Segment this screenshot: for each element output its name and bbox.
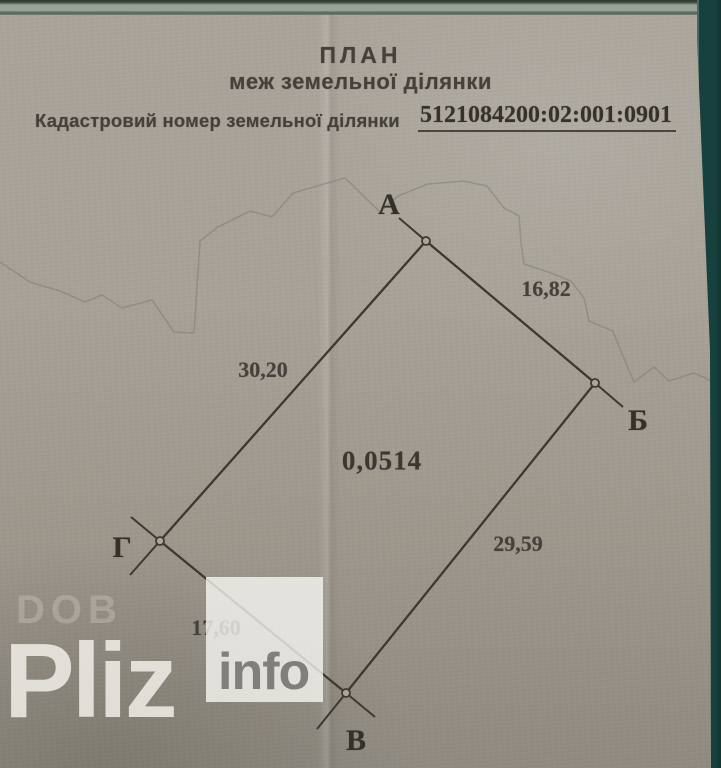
vertex-label-g: Г: [112, 531, 131, 565]
extension-at-v-left: [317, 693, 346, 729]
side-length-gv: 17,60: [191, 615, 241, 641]
extension-at-g-lower: [130, 541, 160, 575]
plot-drawing: [0, 0, 721, 768]
vertex-marker-v: [342, 689, 350, 697]
vertex-marker-b: [591, 379, 599, 387]
adjacent-boundary-contour: [0, 178, 714, 382]
extension-at-b: [595, 383, 623, 407]
parcel-area-value: 0,0514: [342, 446, 422, 477]
vertex-label-v: В: [346, 724, 366, 758]
extension-at-v-right: [346, 693, 375, 717]
extension-at-g-upper: [131, 517, 160, 541]
vertex-marker-a: [422, 237, 430, 245]
vertex-label-b: Б: [628, 404, 648, 438]
vertex-label-a: А: [378, 188, 400, 222]
side-length-ab: 16,82: [521, 276, 571, 302]
side-length-bv: 29,59: [493, 531, 543, 557]
side-length-ag: 30,20: [238, 357, 288, 383]
scanned-cadastral-plan: ПЛАН меж земельної ділянки Кадастровий н…: [0, 0, 721, 768]
vertex-marker-g: [156, 537, 164, 545]
extension-at-a: [399, 218, 426, 241]
